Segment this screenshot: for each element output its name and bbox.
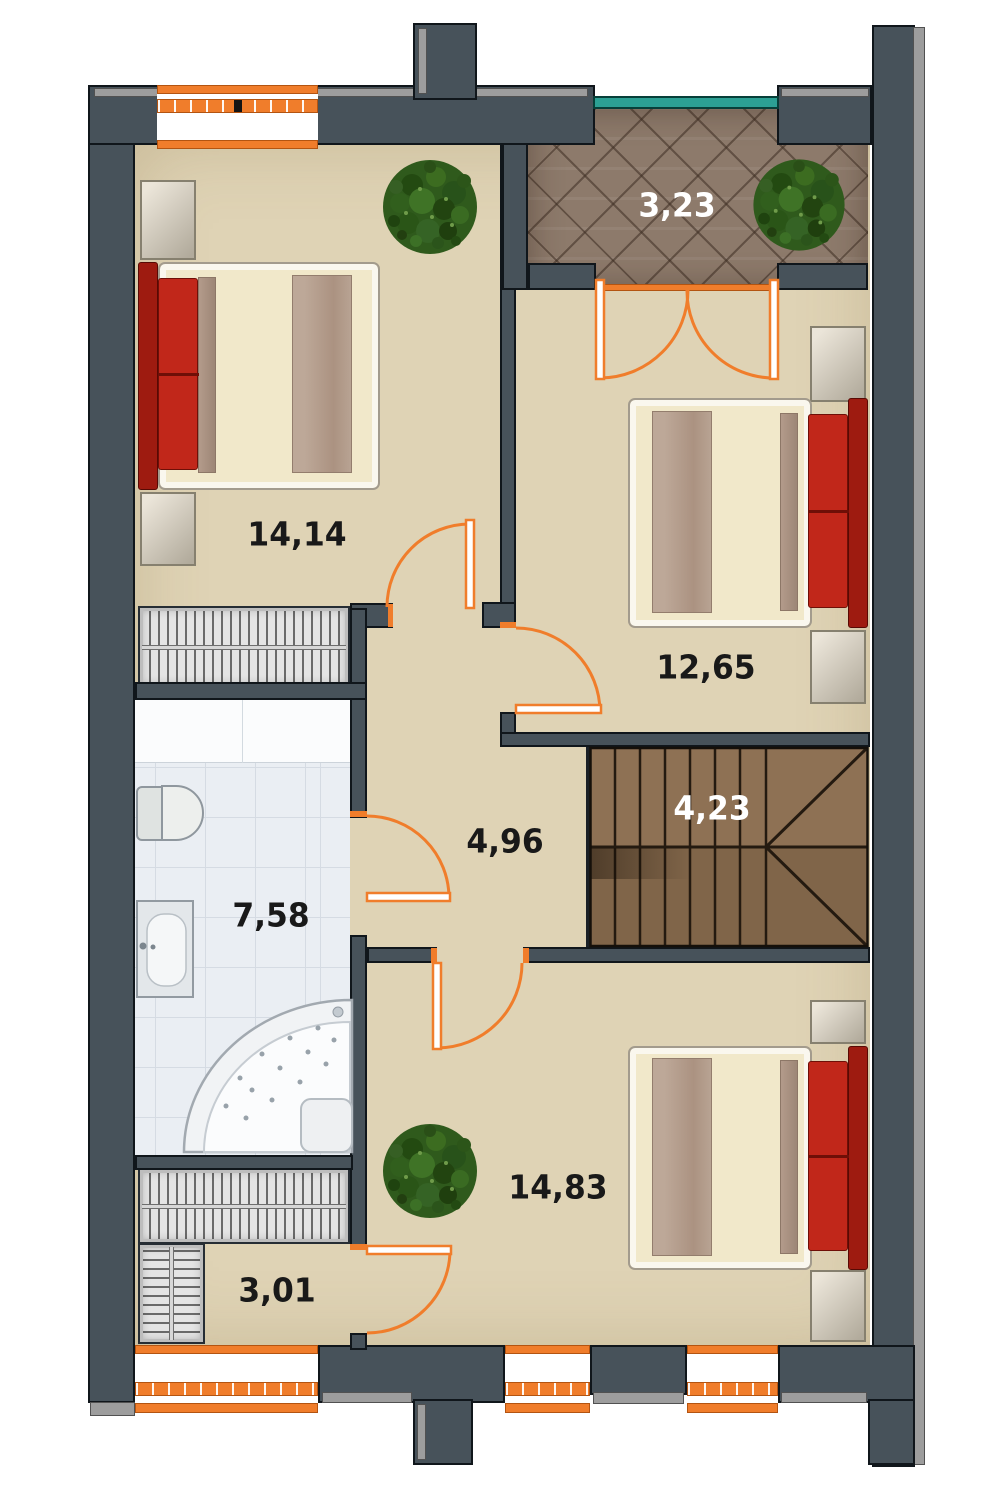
wardrobe [138,1243,205,1344]
headboard-cushions [158,278,198,470]
bed-blanket [292,275,352,473]
balcony-door-sill [597,284,777,291]
bed-pillow [780,413,798,611]
wall-edge [913,27,925,1465]
bed-blanket [652,411,712,613]
wall-interior [500,732,870,747]
window-frame [157,85,318,94]
wall-interior [367,947,437,963]
window-handle [234,100,242,112]
room-area-label-bedroom-right: 12,65 [656,648,755,687]
wall-edge [90,1402,135,1416]
chimney-bottom-right [868,1399,915,1465]
room-area-label-bedroom-upper: 14,14 [247,515,346,554]
wall-edge [781,88,869,97]
wall-interior [350,608,367,818]
nightstand [810,326,866,402]
wall-interior [482,602,516,628]
wall-balcony-south [777,263,868,290]
wardrobe-rail [169,1247,174,1340]
room-area-label-hallway: 4,96 [466,822,543,861]
wall-interior [135,1155,353,1170]
wall-edge [417,1404,426,1460]
wall-edge [418,28,427,94]
window-frame [505,1382,590,1396]
cushion-seam [809,510,849,513]
headboard-back [848,1046,868,1270]
window [135,1345,318,1411]
wardrobe-rail [142,645,346,650]
window [157,85,318,147]
cushion-seam [809,1155,849,1158]
window [687,1345,778,1411]
nightstand [810,1000,866,1044]
wardrobe [138,1168,350,1244]
window-frame [505,1403,590,1413]
wall-exterior-bottom [590,1345,687,1395]
headboard-cushions [808,1061,848,1251]
window-sill [157,140,318,149]
wall-exterior-left [88,85,135,1403]
floor-plan: 14,14 3,23 12,65 4,96 4,23 7,58 14,83 3,… [0,0,999,1508]
double-bed-upper [138,180,398,572]
window-sill [505,1345,590,1354]
double-bed-lower [628,1044,868,1272]
bed-pillow [198,277,216,473]
window-frame [135,1382,318,1396]
tile-seam [242,700,243,763]
nightstand [810,1270,866,1342]
nightstand [140,492,196,566]
window-frame [687,1403,778,1413]
window-frame [157,99,318,113]
wardrobe [138,606,350,688]
wall-interior [350,935,367,1250]
wall-edge [593,1392,684,1404]
wall-balcony-left [502,143,528,290]
stair-edge [586,747,590,947]
window-frame [135,1403,318,1413]
wall-edge [322,1392,412,1403]
window [505,1345,590,1411]
bed-blanket [652,1058,712,1256]
bed-pillow [780,1060,798,1254]
double-bed-right [628,396,868,632]
wall-interior [523,947,870,963]
wall-edge [781,1392,867,1403]
nightstand [810,630,866,704]
nightstand [140,180,196,260]
room-area-label-bathroom: 7,58 [232,896,309,935]
room-area-label-staircase: 4,23 [673,789,750,828]
wall-interior [135,682,367,700]
wardrobe-rail [142,1204,346,1209]
room-area-label-bedroom-lower: 14,83 [508,1168,607,1207]
wall-balcony-south [528,263,596,290]
room-area-label-wardrobe-room: 3,01 [238,1271,315,1310]
balcony-railing [593,96,779,109]
room-area-label-balcony: 3,23 [638,186,715,225]
window-frame [687,1382,778,1396]
cushion-seam [159,373,199,376]
headboard-back [138,262,158,490]
stairs-floor [590,747,868,947]
window-sill [135,1345,318,1354]
headboard-back [848,398,868,628]
window-sill [687,1345,778,1354]
headboard-cushions [808,414,848,608]
wall-interior [350,1333,367,1350]
wall-exterior-right [872,25,915,1467]
